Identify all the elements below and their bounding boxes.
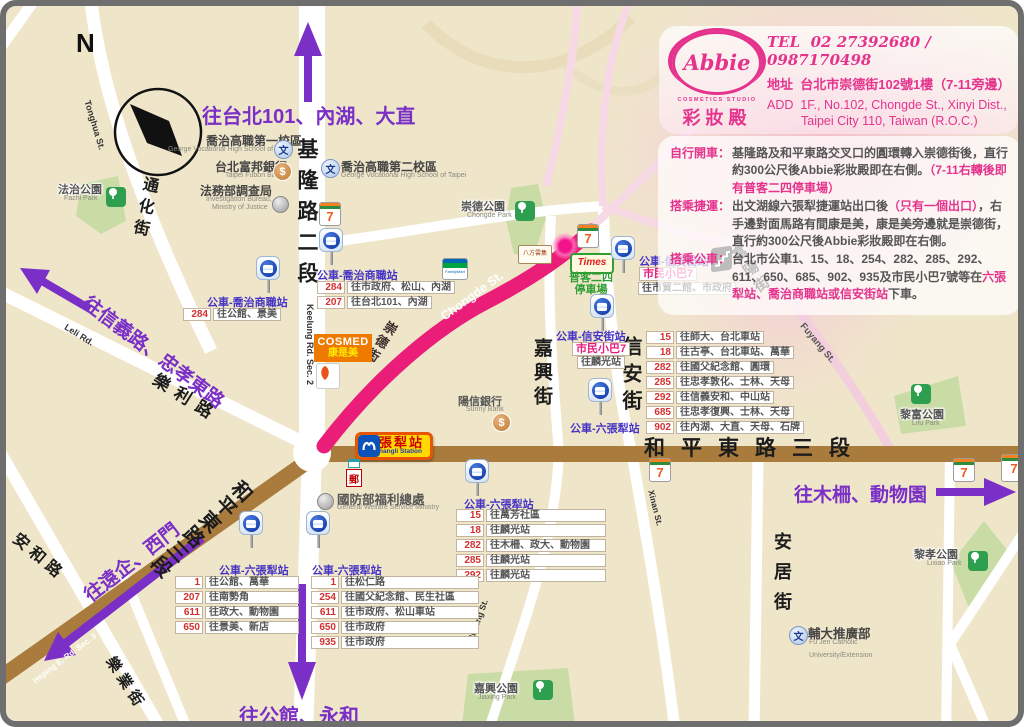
fazhi-park-label-en: Fazhi Park xyxy=(64,195,97,203)
seven-eleven-icon-2: 7 xyxy=(577,224,599,248)
bus-route-row: 207往南勢角 xyxy=(175,591,299,604)
bus-route-destination: 往信義安和、中山站 xyxy=(676,391,774,404)
directions-panel: 自行開車： 基隆路及和平東路交叉口的圓環轉入崇德街後，直行約300公尺後Abbi… xyxy=(658,136,1021,315)
chongde-park-label-en: Chongde Park xyxy=(467,212,512,220)
bus-route-destination: 往市政府 xyxy=(341,621,479,634)
bus-route-row: 285往麟光站 xyxy=(456,554,606,567)
address-row: 地址 台北市崇德街102號1樓（7-11旁邊） xyxy=(767,74,1011,93)
bus-route-destination: 往麟光站 xyxy=(577,356,625,369)
chongde-tree-icon xyxy=(515,201,535,221)
busstop-icon-xinan-n xyxy=(611,236,635,273)
compass-icon xyxy=(115,89,201,175)
seven-eleven-icon: 7 xyxy=(319,202,341,226)
bus-route-row: 284往公館、景美 xyxy=(183,308,281,321)
bus-route-destination: 往萬芳社區 xyxy=(486,509,606,522)
bus-route-number: 292 xyxy=(646,391,674,404)
bus-route-row: 685往忠孝復興、士林、天母 xyxy=(646,406,804,419)
abbie-logo: Abbie COSMETICS STUDIO 彩妝殿 xyxy=(667,31,767,130)
bank-dollar-icon-2: $ xyxy=(492,413,511,432)
directions-bus: 搭乘公車： 台北市公車1、15、18、254、282、285、292、611、6… xyxy=(670,251,1009,303)
bus-route-number: 18 xyxy=(646,346,674,359)
bus-route-number: 284 xyxy=(317,281,345,294)
address-en-row: ADD 1F., No.102, Chongde St., Xinyi Dist… xyxy=(767,98,1011,129)
bus-route-destination: 往師大、台北車站 xyxy=(676,331,764,344)
busstop-icon-george-e xyxy=(319,228,343,265)
bus-route-number: 935 xyxy=(311,636,339,649)
bus-route-number: 15 xyxy=(646,331,674,344)
bus-route-destination: 往國父紀念館、民生社區 xyxy=(341,591,479,604)
busstop-icon-george-w xyxy=(256,256,280,293)
gas-station-icon xyxy=(348,459,360,468)
minibus-label-xinan-s: 市民小巴7 xyxy=(572,342,630,356)
bus-route-number: 902 xyxy=(646,421,674,434)
bus-route-destination: 往古亭、台北車站、萬華 xyxy=(676,346,794,359)
bus-table-xinan-routes: 15往師大、台北車站18往古亭、台北車站、萬華282往國父紀念館、圓環285往忠… xyxy=(646,331,804,436)
bus-table-george-w: 284往公館、景美 xyxy=(183,308,281,323)
seven-eleven-icon-5: 7 xyxy=(1001,454,1024,482)
bus-route-destination: 往市政府、松山車站 xyxy=(341,606,479,619)
map-frame: N 往台北101、內湖、大直 往信義路、忠孝東路 往遠企、西門 往木柵、動物園 … xyxy=(0,0,1024,727)
bus-route-row: 935往市政府 xyxy=(311,636,479,649)
bus-route-destination: 往松仁路 xyxy=(341,576,479,589)
bus-route-row: 1往公館、萬華 xyxy=(175,576,299,589)
bus-route-destination: 往麟光站 xyxy=(486,554,606,567)
road-label-jiaxing: 嘉興街 xyxy=(528,338,555,410)
arrow-label-muzha: 往木柵、動物園 xyxy=(794,480,927,507)
times-parking-sign: Times xyxy=(570,253,614,274)
bus-route-destination: 往內湖、大直、天母、石牌 xyxy=(676,421,804,434)
bus-route-number: 285 xyxy=(456,554,484,567)
bus-route-row: 1往松仁路 xyxy=(311,576,479,589)
bus-route-destination: 往忠孝敦化、士林、天母 xyxy=(676,376,794,389)
fujen-label-en1: Fu Jen Catholic xyxy=(809,639,858,647)
seven-eleven-icon-4: 7 xyxy=(953,458,975,482)
arrow-label-gongguan: 往公館、永和 xyxy=(239,700,359,727)
bus-route-row: 282往木柵、政大、動物園 xyxy=(456,539,606,552)
welfare-label-en: General Welfare Service Ministry xyxy=(337,504,439,512)
investigation-bureau-en1: Investigation Bureau, xyxy=(206,196,272,204)
directions-drive: 自行開車： 基隆路及和平東路交叉口的圓環轉入崇德街後，直行約300公尺後Abbi… xyxy=(670,145,1009,197)
bus-route-number: 207 xyxy=(317,296,345,309)
bus-table-liuzhangli-c: 15往萬芳社區18往麟光站282往木柵、政大、動物園285往麟光站292往麟光站 xyxy=(456,509,606,584)
directions-mrt: 搭乘捷運： 出文湖線六張犁捷運站出口後（只有一個出口），右手邊對面馬路有間康是美… xyxy=(670,198,1009,250)
liuzhangli-station-sign: 六張犁站Liuzhangli Station xyxy=(355,432,433,460)
bus-route-number: 282 xyxy=(646,361,674,374)
bureau-icon xyxy=(272,196,289,213)
bus-route-destination: 往南勢角 xyxy=(205,591,299,604)
busstop-icon-liuzhangli-e xyxy=(306,511,330,548)
bus-route-row: 902往內湖、大直、天母、石牌 xyxy=(646,421,804,434)
bus-route-destination: 往公館、萬華 xyxy=(205,576,299,589)
bus-route-destination: 往景美、新店 xyxy=(205,621,299,634)
bus-route-row: 282往國父紀念館、圓環 xyxy=(646,361,804,374)
lifu-park-label-en: Lifu Park xyxy=(912,420,940,428)
road-anju-st xyxy=(754,456,758,727)
george2-label-en: George Vocational High School of Taipei xyxy=(341,172,466,180)
bus-route-number: 284 xyxy=(183,308,211,321)
bus-route-destination: 往政大、動物園 xyxy=(205,606,299,619)
familymart-icon: FamilyMart xyxy=(442,258,468,280)
bus-route-destination: 往市政府 xyxy=(341,636,479,649)
abbie-business-card: Abbie COSMETICS STUDIO 彩妝殿 TEL 02 273926… xyxy=(659,26,1019,134)
jiaxing-park-label-en: Jiaxing Park xyxy=(478,694,516,702)
fujen-label-en2: University/Extension xyxy=(809,652,872,660)
bus-route-row: 650往市政府 xyxy=(311,621,479,634)
bus-route-row: 18往麟光站 xyxy=(456,524,606,537)
bus-route-row: 18往古亭、台北車站、萬華 xyxy=(646,346,804,359)
bus-route-number: 650 xyxy=(175,621,203,634)
bus-route-number: 282 xyxy=(456,539,484,552)
busstop-icon-xinan-s xyxy=(590,294,614,331)
school-icon: 文 xyxy=(274,140,293,159)
bus-route-destination: 往麟光站 xyxy=(486,524,606,537)
bus-route-destination: 往台北101、內湖 xyxy=(347,296,432,309)
bank-dollar-icon: $ xyxy=(273,162,292,181)
compass-north-label: N xyxy=(76,28,95,59)
bus-route-number: 611 xyxy=(175,606,203,619)
fazhi-tree-icon xyxy=(106,187,126,207)
bus-route-destination: 往麟光站 xyxy=(486,569,606,582)
bus-route-destination: 往木柵、政大、動物園 xyxy=(486,539,606,552)
bus-route-number: 207 xyxy=(175,591,203,604)
bus-route-row: 15往萬芳社區 xyxy=(456,509,606,522)
bafang-sign: 八方雲集 xyxy=(518,245,552,264)
bus-route-row: 292往信義安和、中山站 xyxy=(646,391,804,404)
school-icon-3: 文 xyxy=(789,626,808,645)
bus-route-destination: 往公館、景美 xyxy=(213,308,281,321)
seven-eleven-icon-3: 7 xyxy=(649,458,671,482)
road-label-heping3: 和平東路三段 xyxy=(644,432,866,462)
road-corner xyxy=(6,6,36,51)
bus-table-george-e: 284往市政府、松山、內湖207往台北101、內湖 xyxy=(317,281,455,311)
bus-route-row: 207往台北101、內湖 xyxy=(317,296,455,309)
post-office-icon: 郵 xyxy=(346,469,362,487)
arrow-label-taipei101: 往台北101、內湖、大直 xyxy=(202,100,415,129)
bus-route-number: 285 xyxy=(646,376,674,389)
busstop-label-liuzhangli-road: 公車-六張犁站 xyxy=(570,420,640,436)
bus-route-row: 650往景美、新店 xyxy=(175,621,299,634)
road-glow-4 xyxy=(546,6,578,186)
school-icon-2: 文 xyxy=(321,159,340,178)
bus-route-row: 往麟光站 xyxy=(577,356,625,369)
bus-route-row: 285往忠孝敦化、士林、天母 xyxy=(646,376,804,389)
bus-table-xinan-s: 往麟光站 xyxy=(577,356,625,371)
bus-route-row: 15往師大、台北車站 xyxy=(646,331,804,344)
parking-label: 普客二四 停車場 xyxy=(554,273,628,296)
bus-route-row: 611往市政府、松山車站 xyxy=(311,606,479,619)
busstop-icon-liuzhangli-road xyxy=(588,378,612,415)
bus-table-liuzhangli-w: 1往公館、萬華207往南勢角611往政大、動物園650往景美、新店 xyxy=(175,576,299,636)
bus-route-row: 284往市政府、松山、內湖 xyxy=(317,281,455,294)
lixiao-park-label-en: Lixiao Park xyxy=(927,560,962,568)
busstop-icon-liuzhangli-c xyxy=(465,459,489,496)
busstop-icon-liuzhangli-w xyxy=(239,511,263,548)
lifu-tree-icon xyxy=(911,384,931,404)
bus-route-destination: 往忠孝復興、士林、天母 xyxy=(676,406,794,419)
decorative-swirl-2 xyxy=(566,66,671,91)
bus-route-number: 611 xyxy=(311,606,339,619)
bus-route-number: 1 xyxy=(175,576,203,589)
bus-route-number: 685 xyxy=(646,406,674,419)
decorative-swirl xyxy=(426,18,631,67)
bus-route-number: 650 xyxy=(311,621,339,634)
jiaxing-tree-icon xyxy=(533,680,553,700)
mrt-logo-icon xyxy=(358,435,380,457)
road-label-anju: 安居街 xyxy=(769,532,795,622)
cosmed-logo-icon xyxy=(316,363,340,389)
welfare-icon xyxy=(317,493,334,510)
bus-route-row: 254往國父紀念館、民生社區 xyxy=(311,591,479,604)
bus-route-row: 611往政大、動物園 xyxy=(175,606,299,619)
bus-route-number: 18 xyxy=(456,524,484,537)
bus-route-destination: 往國父紀念館、圓環 xyxy=(676,361,774,374)
tel-row: TEL 02 27392680 / 0987170498 xyxy=(767,33,1011,69)
cosmed-sign: COSMED 康是美 xyxy=(314,334,372,362)
arrow-east-icon xyxy=(984,478,1016,506)
bus-table-liuzhangli-e: 1往松仁路254往國父紀念館、民生社區611往市政府、松山車站650往市政府93… xyxy=(311,576,479,651)
road-right-vertical xyxy=(946,458,950,727)
bus-route-number: 254 xyxy=(311,591,339,604)
bus-route-number: 15 xyxy=(456,509,484,522)
lixiao-tree-icon xyxy=(968,551,988,571)
bus-route-destination: 往市政府、松山、內湖 xyxy=(347,281,455,294)
bus-route-number: 1 xyxy=(311,576,339,589)
investigation-bureau-en2: Ministry of Justice xyxy=(212,204,268,212)
